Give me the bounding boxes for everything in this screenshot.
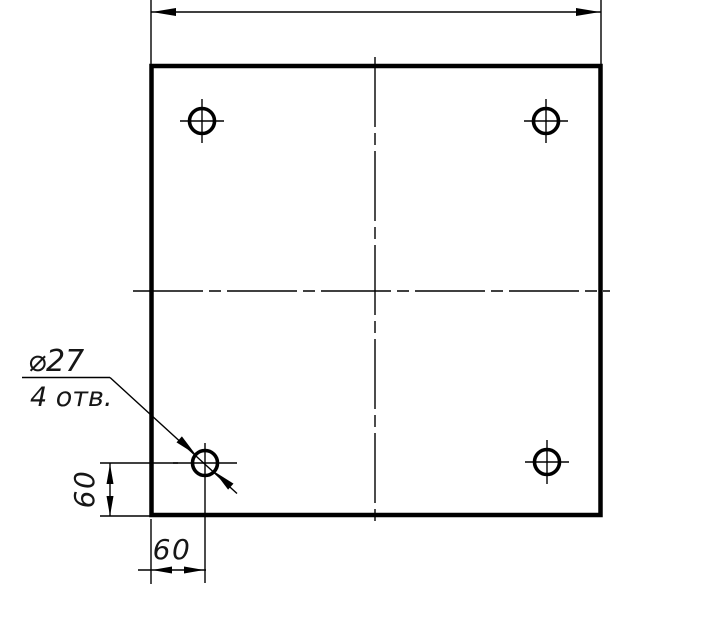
callout-diameter-label: ⌀27 [28, 344, 84, 379]
drawing-canvas: 60 60 ⌀27 4 отв. [0, 0, 713, 631]
hole-marker-top-left [180, 99, 224, 143]
hole-marker-top-right [524, 99, 568, 143]
dim-bottom-value: 60 [153, 533, 192, 566]
arrowhead-right [576, 8, 600, 16]
hole-marker-bottom-right [525, 440, 569, 484]
technical-drawing: 60 60 ⌀27 4 отв. [0, 0, 713, 631]
arrowhead-up [107, 464, 114, 484]
dimension-top-width [151, 0, 601, 64]
arrowhead-left [152, 8, 176, 16]
arrowhead-down [107, 496, 114, 516]
dim-left-value: 60 [68, 470, 101, 509]
dimension-bottom-offset: 60 [138, 519, 206, 584]
arrowhead-left [152, 567, 172, 574]
dimension-left-offset: 60 [68, 463, 178, 516]
arrowhead-right [184, 567, 204, 574]
leader-arrowhead-upper [177, 436, 196, 454]
callout-holes-note: 4 отв. [30, 382, 113, 413]
